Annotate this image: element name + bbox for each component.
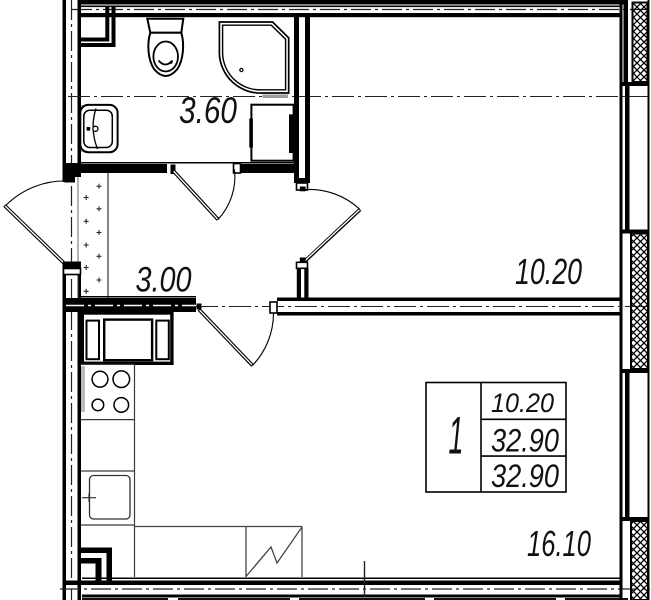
svg-text:10.20: 10.20 bbox=[515, 251, 582, 292]
svg-text:32.90: 32.90 bbox=[491, 458, 559, 494]
svg-text:16.10: 16.10 bbox=[527, 523, 591, 564]
svg-text:3.00: 3.00 bbox=[136, 260, 192, 300]
svg-text:3.60: 3.60 bbox=[179, 89, 237, 131]
svg-text:10.20: 10.20 bbox=[491, 388, 554, 418]
svg-text:1: 1 bbox=[449, 407, 464, 466]
svg-text:32.90: 32.90 bbox=[491, 422, 559, 458]
